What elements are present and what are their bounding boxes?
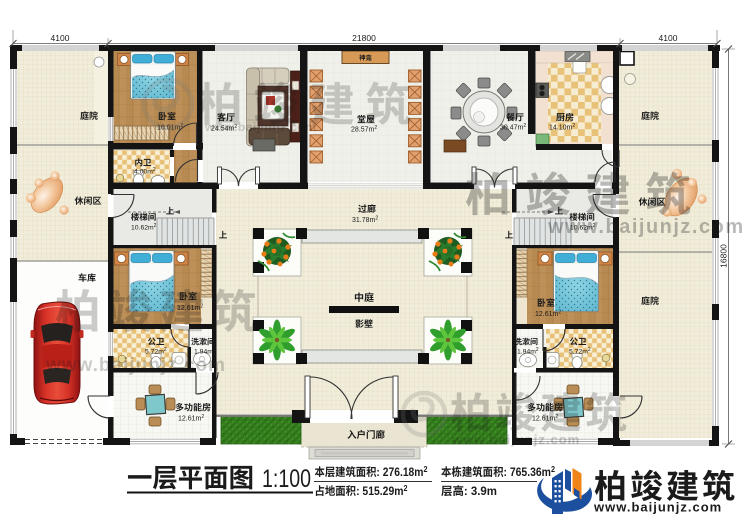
svg-text:庭院: 庭院 [641, 294, 659, 307]
svg-text:柏竣建筑: 柏竣建筑 [55, 276, 263, 342]
svg-text:楼梯间: 楼梯间 [131, 211, 157, 223]
svg-text:上: 上 [505, 229, 514, 241]
svg-text:4100: 4100 [659, 33, 678, 43]
svg-text:层高: 3.9m: 层高: 3.9m [441, 483, 497, 499]
svg-text:12.61m2: 12.61m2 [178, 414, 204, 423]
svg-text:占地面积: 515.29m2: 占地面积: 515.29m2 [315, 483, 408, 499]
svg-text:本层建筑面积: 276.18m2: 本层建筑面积: 276.18m2 [315, 464, 428, 480]
svg-text:厨房: 厨房 [556, 111, 574, 124]
svg-text:餐厅: 餐厅 [506, 111, 524, 124]
svg-text:16800: 16800 [719, 244, 729, 268]
svg-text:4.00m2: 4.00m2 [134, 167, 156, 175]
svg-text:神龛: 神龛 [359, 52, 373, 62]
svg-text:www.baijunjz.com: www.baijunjz.com [593, 500, 722, 515]
svg-text:卧室: 卧室 [537, 296, 555, 309]
svg-text:入户门廊: 入户门廊 [347, 427, 386, 441]
svg-text:本栋建筑面积: 765.36m2: 本栋建筑面积: 765.36m2 [441, 464, 555, 480]
svg-text:内卫: 内卫 [134, 157, 152, 169]
svg-text:多功能房: 多功能房 [175, 401, 211, 414]
svg-text:过廊: 过廊 [358, 202, 376, 215]
svg-text:4100: 4100 [51, 33, 70, 43]
svg-text:影壁: 影壁 [355, 317, 373, 330]
svg-text:洗漱间: 洗漱间 [514, 337, 538, 348]
svg-text:31.78m2: 31.78m2 [352, 216, 378, 225]
svg-text:一层平面图: 一层平面图 [127, 458, 254, 495]
svg-text:上: 上 [219, 229, 228, 241]
svg-text:14.10m2: 14.10m2 [549, 123, 575, 132]
svg-text:休闲区: 休闲区 [74, 194, 101, 207]
svg-text:12.61m2: 12.61m2 [535, 310, 561, 319]
svg-text:中庭: 中庭 [354, 289, 374, 304]
svg-text:5.72m2: 5.72m2 [569, 347, 591, 355]
svg-text:1.94m2: 1.94m2 [517, 347, 539, 355]
svg-text:30.47m2: 30.47m2 [500, 123, 526, 132]
svg-text:www.baijunjz.com: www.baijunjz.com [204, 120, 317, 134]
svg-text:1:100: 1:100 [262, 465, 311, 493]
svg-text:庭院: 庭院 [80, 109, 98, 122]
svg-text:www.baijunjz.com: www.baijunjz.com [547, 216, 745, 238]
svg-text:www.baijunjz.com: www.baijunjz.com [451, 432, 580, 447]
svg-text:公卫: 公卫 [569, 336, 587, 348]
svg-text:庭院: 庭院 [641, 109, 659, 122]
svg-text:21800: 21800 [352, 33, 376, 43]
svg-text:上: 上 [166, 205, 175, 217]
svg-text:www.baijunjz.com: www.baijunjz.com [45, 355, 226, 376]
svg-text:10.62m2: 10.62m2 [131, 223, 157, 231]
